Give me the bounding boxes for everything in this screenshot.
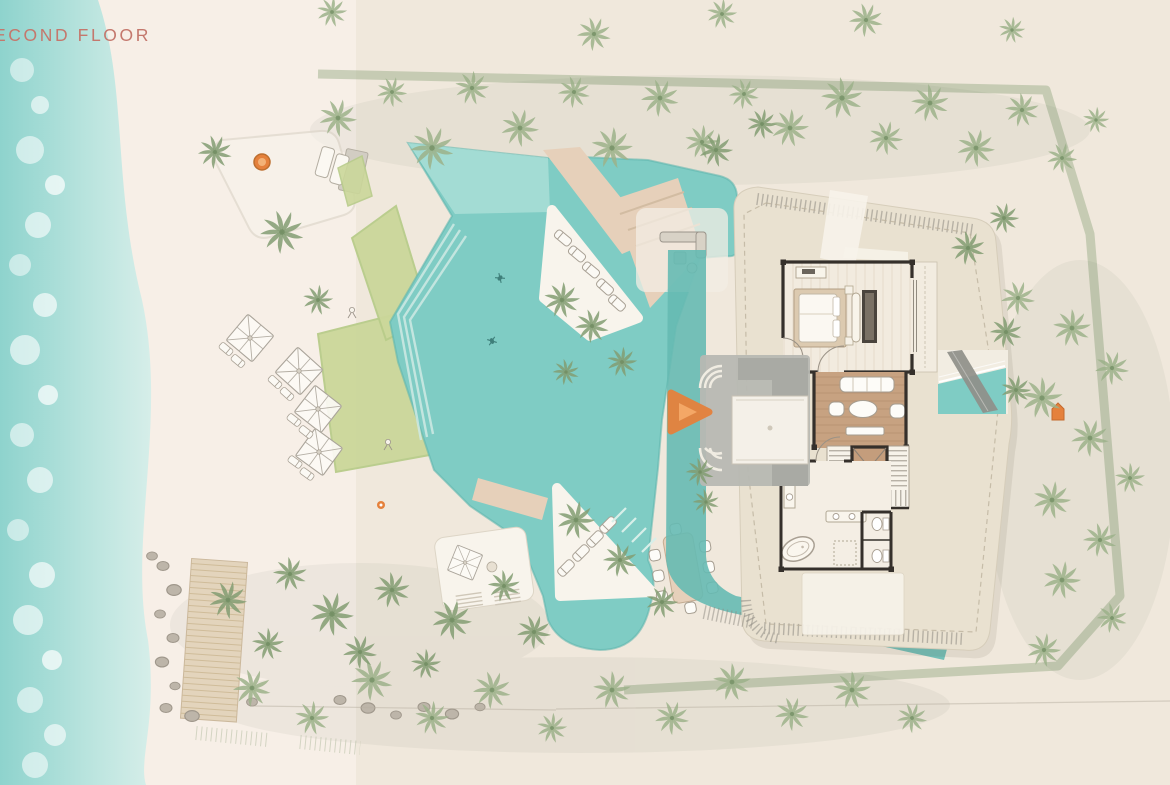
wardrobe-inner xyxy=(865,293,874,340)
bed xyxy=(794,289,846,347)
living-room xyxy=(812,372,910,450)
lifebuoy-center xyxy=(380,504,383,507)
armchair xyxy=(829,402,844,416)
double-vanity xyxy=(826,511,866,522)
tv xyxy=(802,269,815,274)
floor-plan-title: ECOND FLOOR xyxy=(0,25,151,45)
basin xyxy=(833,514,839,520)
patio-cutout xyxy=(938,350,1008,414)
lower-terrace xyxy=(802,573,904,635)
site-plan: ECOND FLOOR xyxy=(0,0,1170,785)
tv-console xyxy=(846,427,884,435)
nightstand xyxy=(845,286,853,294)
site-plan-canvas: ECOND FLOOR xyxy=(0,0,1170,785)
jacuzzi-deck xyxy=(433,526,534,612)
chaise xyxy=(852,293,860,342)
entry-mark xyxy=(768,426,773,431)
boardwalk xyxy=(180,559,247,723)
coffee-table xyxy=(849,401,877,418)
entry-terrace xyxy=(700,355,810,486)
basin xyxy=(849,514,855,520)
armchair xyxy=(890,404,905,418)
fire-pit-center xyxy=(258,158,266,166)
toilet xyxy=(872,550,889,563)
basin xyxy=(786,494,792,500)
toilet xyxy=(872,518,889,531)
